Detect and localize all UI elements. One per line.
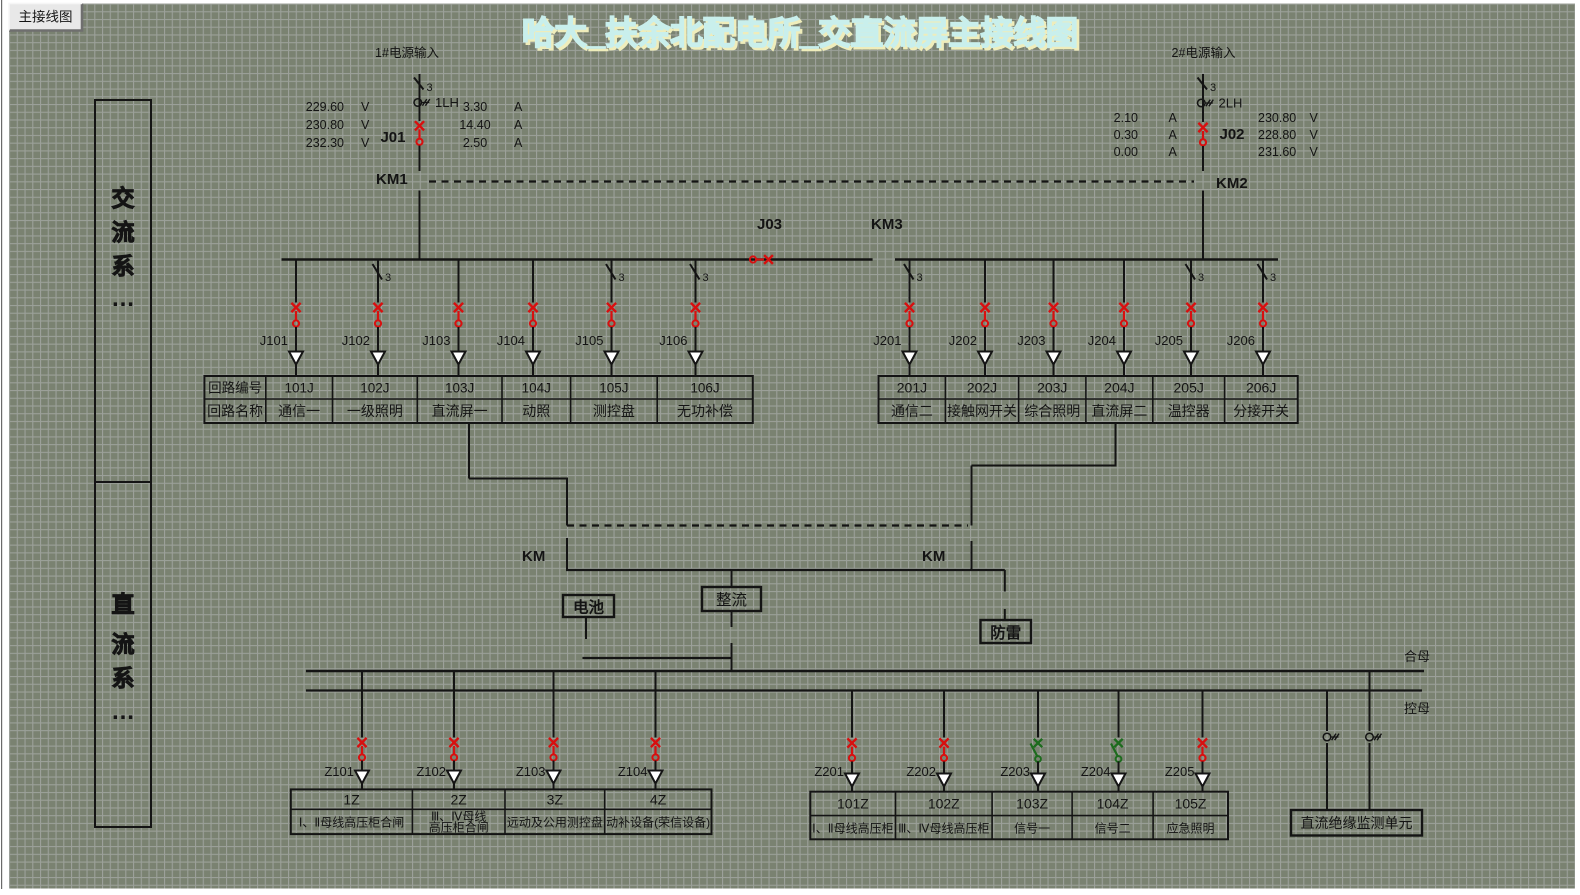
svg-text:接触网开关: 接触网开关 (947, 403, 1017, 419)
svg-text:V: V (1310, 111, 1319, 125)
svg-text:J106: J106 (659, 333, 687, 348)
svg-text:A: A (514, 136, 523, 150)
svg-text:V: V (361, 118, 370, 132)
svg-text:分接开关: 分接开关 (1233, 403, 1289, 419)
svg-text:2LH: 2LH (1219, 96, 1243, 111)
svg-text:…: … (111, 285, 135, 312)
svg-text:3: 3 (1198, 272, 1204, 284)
svg-text:A: A (514, 118, 523, 132)
svg-text:J203: J203 (1017, 333, 1045, 348)
svg-text:228.80: 228.80 (1258, 128, 1296, 142)
svg-text:103Z: 103Z (1016, 796, 1048, 812)
svg-text:3: 3 (917, 272, 923, 284)
svg-text:J03: J03 (757, 216, 782, 233)
svg-text:J101: J101 (260, 333, 288, 348)
svg-text:…: … (111, 698, 135, 725)
svg-text:远动及公用测控盘: 远动及公用测控盘 (507, 815, 603, 830)
svg-text:0.30: 0.30 (1114, 128, 1138, 142)
svg-text:3: 3 (1210, 82, 1216, 94)
svg-text:V: V (361, 100, 370, 114)
svg-text:测控盘: 测控盘 (593, 403, 635, 419)
svg-text:1Z: 1Z (343, 791, 360, 807)
svg-text:204J: 204J (1104, 380, 1134, 396)
svg-text:温控器: 温控器 (1168, 403, 1210, 419)
svg-text:交: 交 (112, 185, 135, 211)
svg-text:Ⅰ、Ⅱ母线高压柜合闸: Ⅰ、Ⅱ母线高压柜合闸 (299, 815, 404, 830)
svg-text:Z205: Z205 (1165, 764, 1195, 779)
svg-text:229.60: 229.60 (306, 100, 344, 114)
svg-text:动照: 动照 (522, 403, 550, 419)
svg-text:J205: J205 (1155, 333, 1183, 348)
svg-text:1LH: 1LH (435, 95, 459, 110)
svg-text:A: A (1169, 111, 1178, 125)
svg-text:J103: J103 (422, 333, 450, 348)
svg-text:直流屏二: 直流屏二 (1091, 403, 1147, 419)
svg-text:J02: J02 (1220, 126, 1245, 143)
svg-text:103J: 103J (445, 381, 474, 396)
svg-text:3: 3 (1270, 272, 1276, 284)
svg-text:A: A (514, 100, 523, 114)
svg-text:2#电源输入: 2#电源输入 (1172, 45, 1236, 60)
svg-text:Z104: Z104 (618, 764, 648, 779)
svg-text:J201: J201 (873, 333, 901, 348)
svg-text:230.80: 230.80 (306, 118, 344, 132)
svg-text:整流: 整流 (716, 591, 747, 609)
svg-text:一级照明: 一级照明 (347, 403, 403, 419)
svg-text:Z101: Z101 (324, 764, 354, 779)
svg-text:A: A (1169, 128, 1178, 142)
svg-text:230.80: 230.80 (1258, 111, 1296, 125)
svg-text:Z201: Z201 (814, 764, 844, 779)
svg-text:合母: 合母 (1404, 649, 1430, 664)
svg-text:综合照明: 综合照明 (1024, 403, 1080, 419)
svg-text:J204: J204 (1088, 333, 1116, 348)
svg-text:流: 流 (112, 219, 135, 245)
svg-text:4Z: 4Z (650, 791, 667, 807)
svg-text:101J: 101J (285, 381, 314, 396)
svg-text:205J: 205J (1174, 380, 1204, 396)
svg-text:直流屏一: 直流屏一 (432, 403, 488, 419)
svg-text:Z103: Z103 (516, 764, 546, 779)
svg-text:V: V (1310, 128, 1319, 142)
svg-text:应急照明: 应急照明 (1167, 820, 1215, 835)
svg-text:J01: J01 (380, 129, 405, 146)
svg-text:KM1: KM1 (376, 171, 408, 188)
svg-text:2.10: 2.10 (1114, 111, 1138, 125)
svg-text:102J: 102J (360, 381, 389, 396)
svg-text:232.30: 232.30 (306, 136, 344, 150)
svg-text:1#电源输入: 1#电源输入 (375, 45, 439, 60)
svg-text:102Z: 102Z (928, 796, 960, 812)
svg-text:J104: J104 (497, 333, 525, 348)
svg-text:104J: 104J (522, 381, 551, 396)
svg-text:201J: 201J (897, 380, 927, 396)
svg-text:哈大_扶余北配电所_交直流屏主接线图: 哈大_扶余北配电所_交直流屏主接线图 (522, 14, 1078, 51)
svg-text:KM: KM (922, 548, 945, 565)
svg-text:Z102: Z102 (416, 764, 446, 779)
svg-text:KM3: KM3 (871, 216, 903, 233)
svg-text:202J: 202J (967, 380, 997, 396)
svg-text:3: 3 (385, 272, 391, 284)
svg-text:流: 流 (112, 631, 135, 657)
svg-text:2.50: 2.50 (463, 136, 487, 150)
svg-text:203J: 203J (1037, 380, 1067, 396)
svg-text:直: 直 (112, 591, 135, 617)
svg-text:0.00: 0.00 (1114, 145, 1138, 159)
svg-text:信号一: 信号一 (1014, 821, 1050, 835)
svg-text:3Z: 3Z (547, 791, 564, 807)
svg-text:3: 3 (703, 272, 709, 284)
svg-text:回路编号: 回路编号 (208, 381, 262, 396)
svg-text:J102: J102 (342, 333, 370, 348)
svg-text:231.60: 231.60 (1258, 145, 1296, 159)
svg-text:Ⅲ、Ⅳ母线高压柜: Ⅲ、Ⅳ母线高压柜 (898, 820, 989, 835)
svg-text:J206: J206 (1227, 333, 1255, 348)
svg-text:104Z: 104Z (1097, 796, 1129, 812)
svg-text:206J: 206J (1246, 380, 1276, 396)
svg-text:系: 系 (112, 253, 135, 279)
svg-text:防雷: 防雷 (990, 623, 1021, 642)
svg-text:通信二: 通信二 (891, 403, 933, 419)
svg-text:14.40: 14.40 (459, 118, 490, 132)
svg-text:通信一: 通信一 (278, 403, 320, 419)
svg-text:105Z: 105Z (1175, 796, 1207, 812)
svg-text:V: V (361, 136, 370, 150)
svg-text:3.30: 3.30 (463, 100, 487, 114)
svg-text:动补设备(荣信设备): 动补设备(荣信设备) (606, 816, 710, 830)
svg-text:Z203: Z203 (1000, 764, 1030, 779)
svg-text:2Z: 2Z (451, 791, 468, 807)
svg-text:回路名称: 回路名称 (207, 403, 263, 419)
svg-text:105J: 105J (599, 381, 628, 396)
svg-text:A: A (1169, 145, 1178, 159)
svg-text:KM: KM (522, 548, 545, 565)
svg-text:J202: J202 (949, 333, 977, 348)
svg-text:主接线图: 主接线图 (19, 9, 73, 25)
svg-text:101Z: 101Z (837, 796, 869, 812)
svg-text:Z202: Z202 (906, 764, 936, 779)
svg-text:Ⅰ、Ⅱ母线高压柜: Ⅰ、Ⅱ母线高压柜 (812, 820, 893, 835)
svg-text:Z204: Z204 (1081, 764, 1111, 779)
svg-text:高压柜合闸: 高压柜合闸 (429, 820, 489, 835)
svg-text:KM2: KM2 (1216, 175, 1248, 192)
svg-text:控母: 控母 (1404, 701, 1430, 716)
svg-text:信号二: 信号二 (1095, 821, 1131, 835)
svg-text:J105: J105 (575, 333, 603, 348)
svg-text:106J: 106J (690, 381, 719, 396)
svg-text:V: V (1310, 145, 1319, 159)
svg-text:系: 系 (112, 665, 135, 691)
svg-text:3: 3 (619, 272, 625, 284)
svg-text:无功补偿: 无功补偿 (677, 403, 733, 419)
svg-text:直流绝缘监测单元: 直流绝缘监测单元 (1301, 815, 1413, 831)
svg-text:电池: 电池 (573, 598, 605, 617)
svg-text:3: 3 (427, 82, 433, 94)
